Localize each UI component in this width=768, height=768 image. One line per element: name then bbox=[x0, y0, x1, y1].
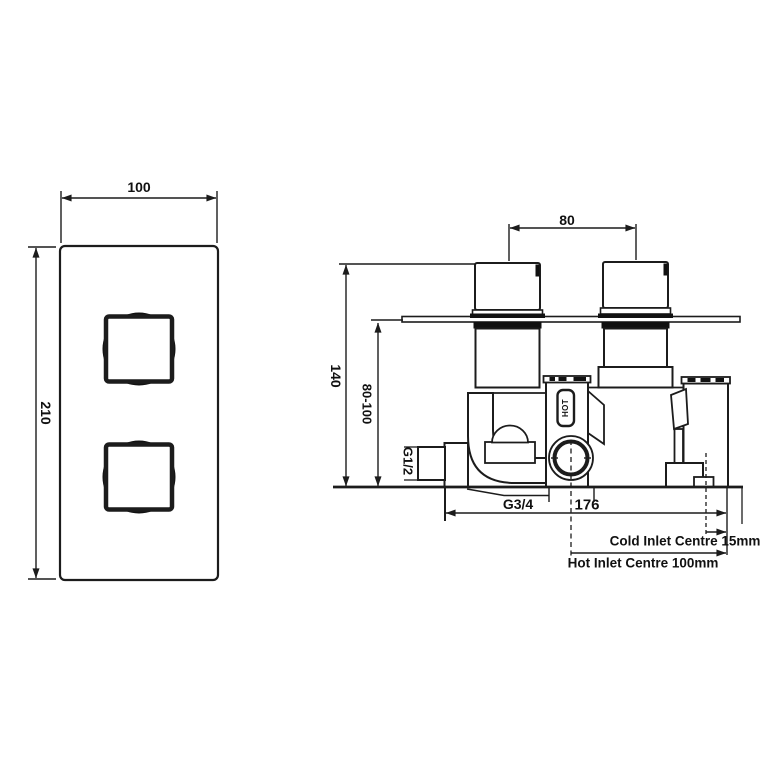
cartridge bbox=[544, 376, 605, 487]
wall-plate-edge bbox=[402, 317, 740, 323]
handle-top bbox=[103, 313, 176, 386]
fixing-block bbox=[666, 377, 730, 487]
dim-handle-centres bbox=[509, 224, 636, 261]
depth-range-label: 80-100 bbox=[361, 384, 374, 424]
side-height-label: 140 bbox=[329, 364, 343, 387]
inlet-flange bbox=[445, 443, 469, 487]
front-width-label: 100 bbox=[127, 180, 150, 194]
handle-bottom bbox=[103, 441, 176, 514]
outlet-thread-label: G3/4 bbox=[503, 497, 533, 511]
drawing-linework bbox=[0, 0, 768, 768]
front-height-label: 210 bbox=[39, 401, 53, 424]
handle-centres-label: 80 bbox=[559, 213, 575, 227]
body-width-label: 176 bbox=[574, 498, 599, 513]
dim-front-width bbox=[61, 191, 217, 243]
hot-inlet-note: Hot Inlet Centre 100mm bbox=[568, 556, 719, 570]
g12-stub bbox=[418, 447, 445, 480]
side-handle-hot bbox=[470, 263, 545, 388]
side-handle-cold bbox=[598, 262, 673, 388]
technical-drawing-shower-valve: 100 210 80 140 80-100 G1/2 G3/4 176 HOT … bbox=[0, 0, 768, 768]
inlet-thread-label: G1/2 bbox=[402, 447, 415, 475]
faceplate bbox=[60, 246, 218, 580]
front-view bbox=[28, 191, 218, 580]
side-view bbox=[333, 224, 743, 556]
hot-marking-label: HOT bbox=[562, 399, 570, 417]
cold-inlet-note: Cold Inlet Centre 15mm bbox=[610, 534, 761, 548]
dim-depth-80-100 bbox=[371, 320, 403, 486]
